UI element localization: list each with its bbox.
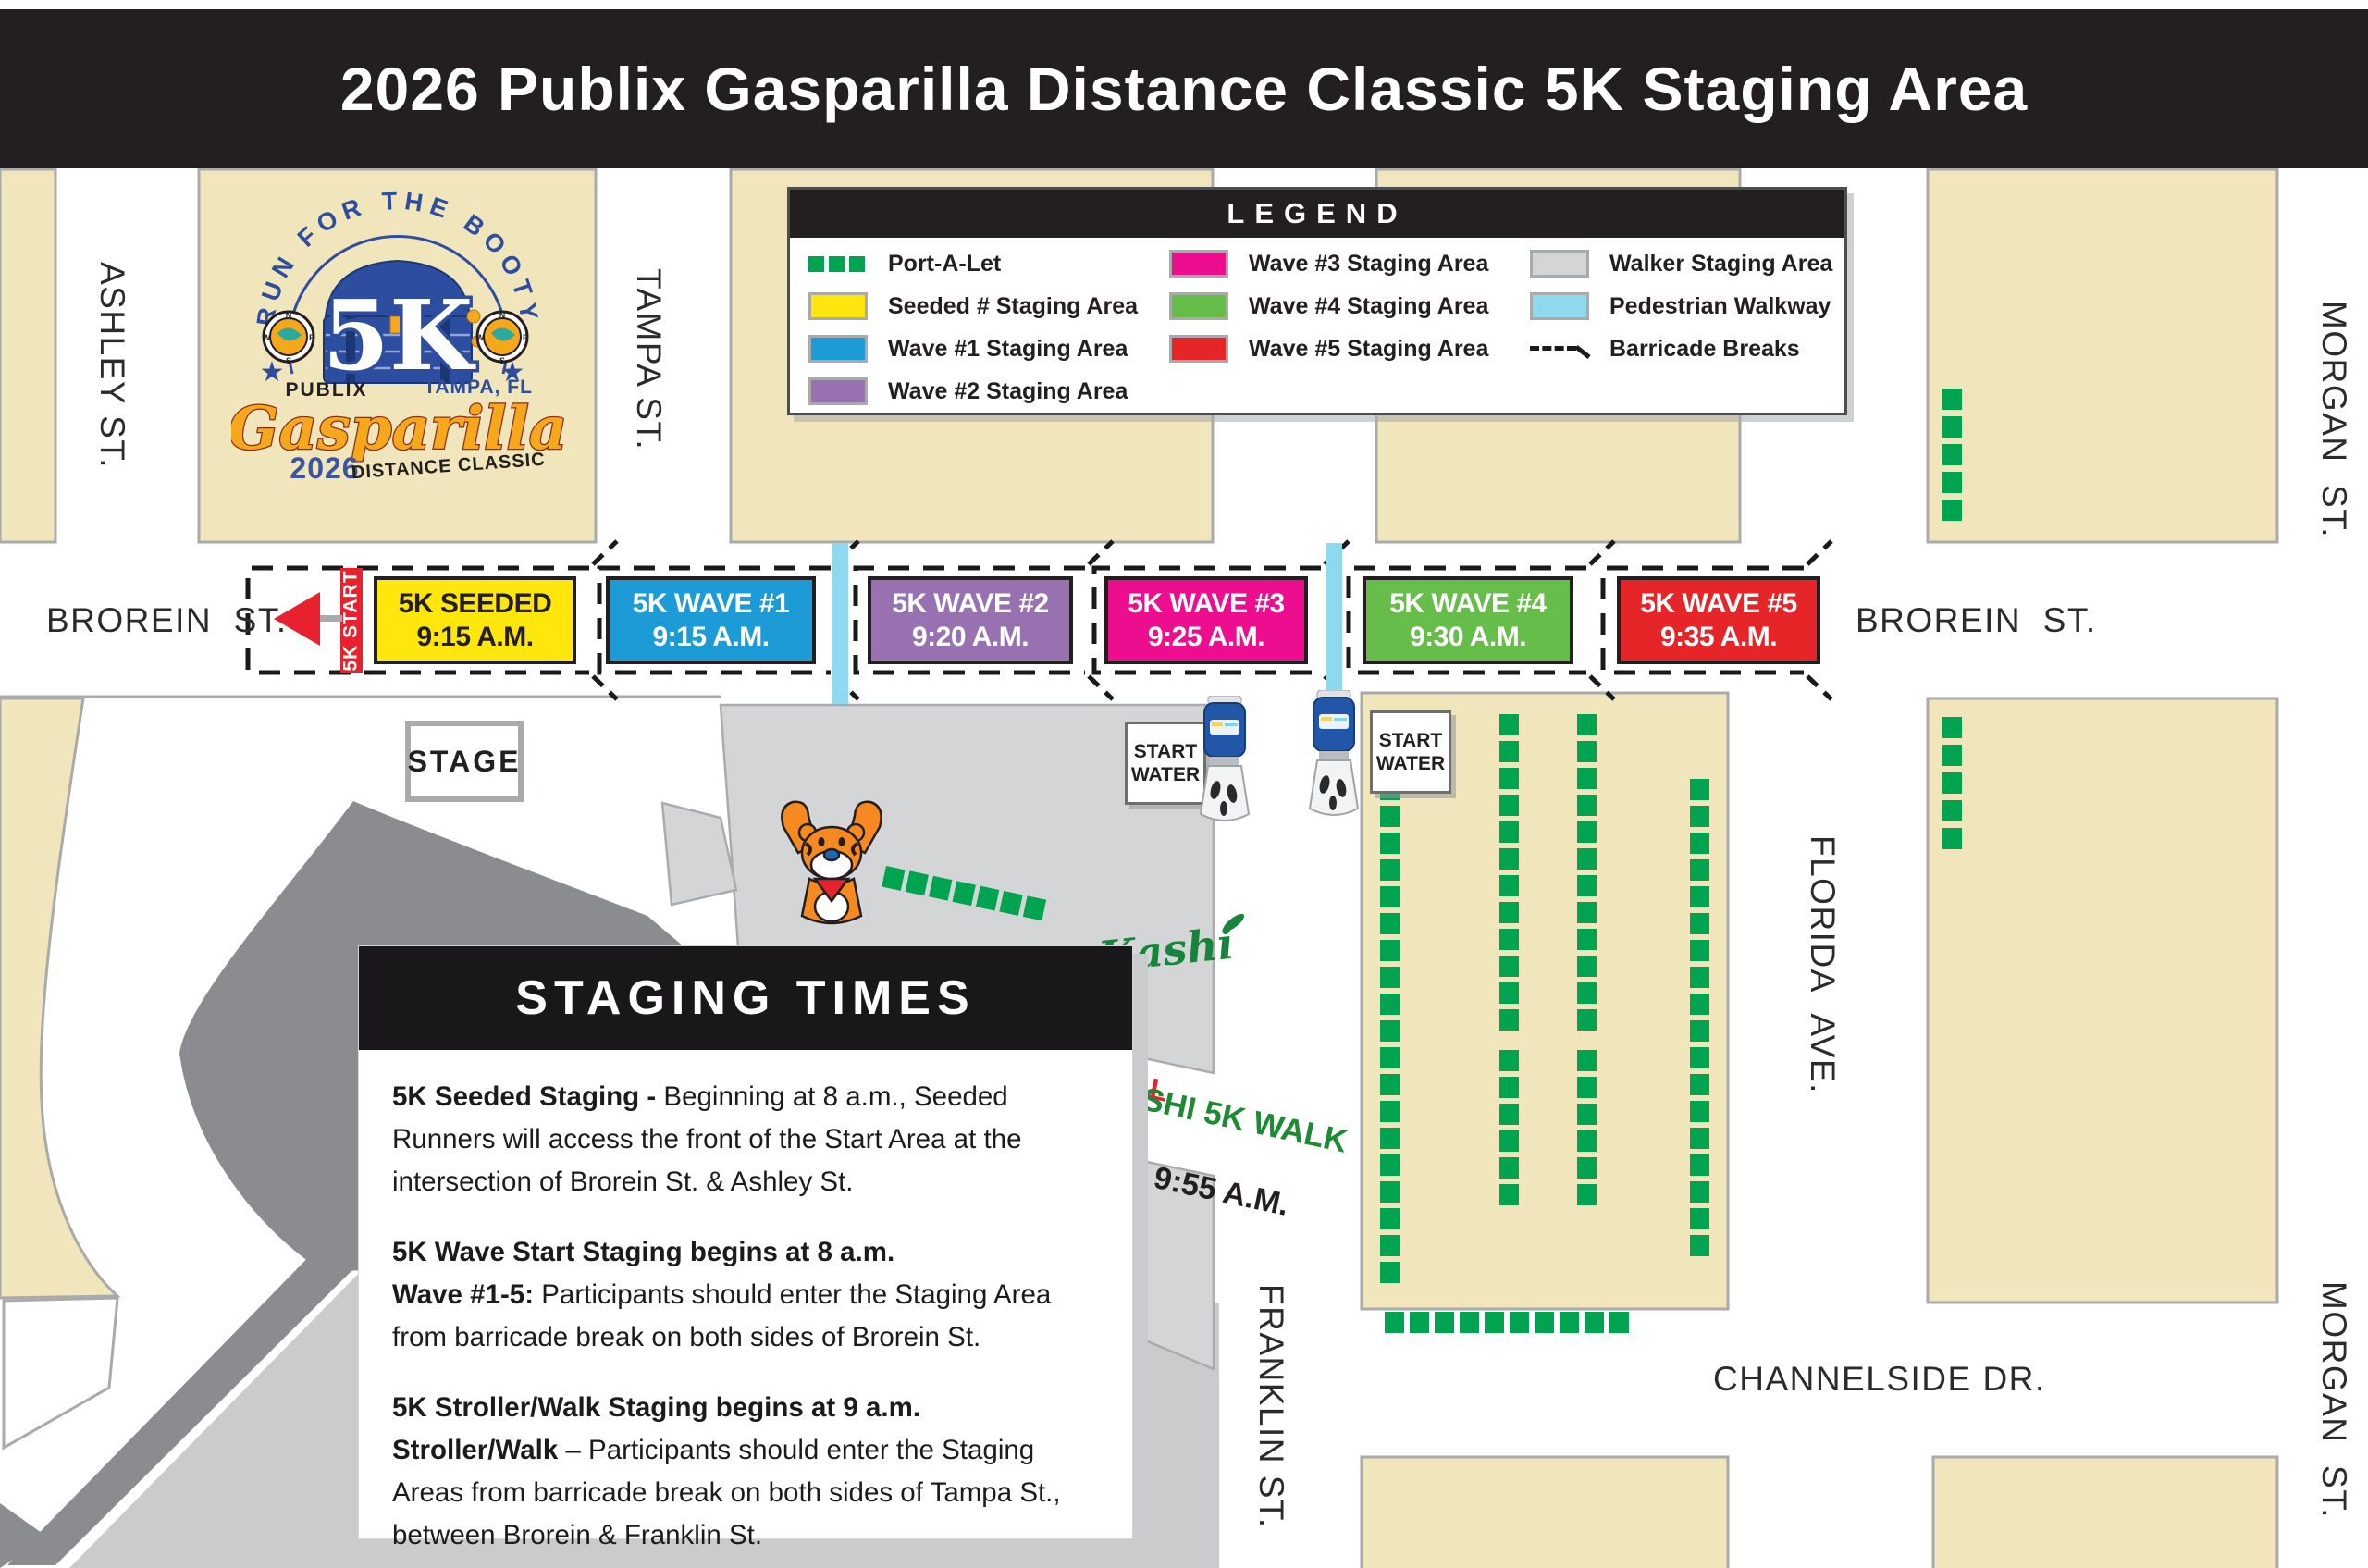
water-cooler-icon: [1308, 690, 1360, 829]
wave-staging-box: 5K WAVE #59:35 A.M.: [1617, 576, 1820, 664]
pedestrian-walkway-bar: [832, 543, 848, 704]
port-a-let-square: [1499, 714, 1519, 735]
port-a-let-square: [1690, 806, 1709, 827]
start-water-line1: START: [1379, 729, 1442, 752]
staging-times-box: STAGING TIMES 5K Seeded Staging - Beginn…: [358, 945, 1133, 1539]
legend-item: Seeded # Staging Area: [808, 290, 1138, 323]
port-a-let-square: [1499, 795, 1519, 816]
legend-label: Walker Staging Area: [1609, 251, 1832, 278]
start-water-box: START WATER: [1125, 722, 1206, 805]
port-a-let-square: [1577, 1130, 1597, 1152]
svg-text:N: N: [286, 311, 292, 320]
port-a-let-square: [1577, 768, 1597, 789]
wave-staging-box: 5K WAVE #19:15 A.M.: [606, 576, 816, 664]
wave-time: 9:30 A.M.: [1410, 621, 1526, 654]
city-block: [0, 169, 55, 542]
port-a-let-square: [1380, 1020, 1400, 1042]
wave-label: 5K SEEDED: [399, 587, 552, 621]
port-a-let-square: [1499, 1077, 1519, 1098]
port-a-let-square: [1560, 1312, 1579, 1333]
legend-item: Wave #1 Staging Area: [808, 332, 1128, 365]
port-a-let-square: [1690, 833, 1709, 854]
port-a-let-square: [1577, 848, 1597, 870]
port-a-let-square: [1380, 1262, 1400, 1283]
start-water-line1: START: [1134, 740, 1197, 763]
port-a-let-square: [1690, 779, 1709, 800]
port-a-let-square: [1535, 1312, 1554, 1333]
port-a-let-square: [1380, 1235, 1400, 1256]
port-a-let-square: [1499, 956, 1519, 977]
port-a-let-square: [1510, 1312, 1529, 1333]
stage-label: STAGE: [408, 745, 522, 779]
staging-times-paragraph: 5K Wave Start Staging begins at 8 a.m.Wa…: [392, 1231, 1106, 1359]
port-a-let-square: [1577, 1077, 1597, 1098]
port-a-let-square: [1499, 929, 1519, 950]
5k-start-label: 5K START: [340, 570, 363, 671]
color-swatch-icon: [808, 377, 868, 405]
legend-item: Wave #5 Staging Area: [1169, 332, 1488, 365]
title-bar: 2026 Publix Gasparilla Distance Classic …: [0, 9, 2368, 168]
barricade-break-swatch-icon: [1530, 335, 1589, 363]
city-block: [1362, 1457, 1728, 1568]
city-block: [1933, 1457, 2277, 1568]
legend-item: Port-A-Let: [808, 247, 1001, 280]
color-swatch-icon: [1530, 292, 1589, 320]
staging-times-text: 5K Seeded Staging -: [392, 1081, 663, 1112]
port-a-let-square: [1499, 1050, 1519, 1071]
legend-label: Pedestrian Walkway: [1609, 293, 1831, 320]
svg-text:E: E: [309, 333, 314, 342]
port-a-let-square: [1410, 1312, 1429, 1333]
port-a-let-square: [1942, 500, 1962, 521]
port-a-let-square: [1499, 1009, 1519, 1031]
port-a-let-square: [1385, 1312, 1404, 1333]
port-a-let-square: [1942, 416, 1962, 438]
port-a-let-square: [1577, 956, 1597, 977]
port-a-let-square: [1690, 1047, 1709, 1068]
city-block: [1928, 698, 2277, 1303]
port-a-let-square: [1435, 1312, 1454, 1333]
port-a-let-square: [1577, 982, 1597, 1004]
street-label-tampa: TAMPA ST.: [629, 268, 668, 451]
port-a-let-square: [1690, 886, 1709, 907]
port-a-let-square: [1485, 1312, 1504, 1333]
port-a-let-square: [1690, 1074, 1709, 1095]
port-a-let-square: [1499, 1157, 1519, 1179]
walker-staging-notch: [662, 803, 736, 905]
start-water-box: START WATER: [1370, 710, 1451, 794]
legend-label: Barricade Breaks: [1609, 336, 1800, 363]
port-a-let-square: [1499, 848, 1519, 870]
stage-box: STAGE: [405, 721, 524, 802]
5k-start-band: 5K START: [340, 568, 363, 673]
start-water-line2: WATER: [1131, 763, 1200, 786]
street-label-brorein-west: BROREIN ST.: [46, 601, 288, 640]
port-a-let-square: [1690, 859, 1709, 881]
port-a-let-square: [1380, 1047, 1400, 1068]
port-a-let-square: [1499, 1184, 1519, 1205]
wave-label: 5K WAVE #3: [1128, 587, 1285, 621]
port-a-let-square: [1942, 828, 1962, 849]
port-a-let-square: [1499, 875, 1519, 896]
port-a-let-square: [1499, 741, 1519, 762]
port-a-let-square: [1690, 1101, 1709, 1122]
port-a-let-square: [1499, 821, 1519, 843]
port-a-let-square: [1690, 1154, 1709, 1176]
legend-item: Wave #2 Staging Area: [808, 375, 1128, 408]
port-a-let-square: [1380, 806, 1400, 827]
barricade-break-tick: [1590, 541, 1614, 564]
svg-text:N: N: [499, 311, 506, 320]
port-a-let-square: [1380, 859, 1400, 881]
staging-times-header: STAGING TIMES: [359, 946, 1132, 1050]
legend-item: Wave #3 Staging Area: [1169, 247, 1488, 280]
staging-times-text: Wave #1-5:: [392, 1279, 541, 1310]
port-a-let-square: [1690, 1181, 1709, 1203]
port-a-let-square: [1380, 913, 1400, 934]
port-a-let-square: [1380, 940, 1400, 961]
port-a-let-square: [1942, 772, 1962, 794]
wave-label: 5K WAVE #2: [892, 587, 1049, 621]
port-a-let-square: [1690, 1235, 1709, 1256]
city-block-curved: [0, 698, 117, 1298]
color-swatch-icon: [1530, 250, 1589, 278]
port-a-let-square: [1690, 1020, 1709, 1042]
svg-text:S: S: [499, 356, 505, 365]
port-a-let-square: [1942, 717, 1962, 738]
port-a-let-square: [1577, 1050, 1597, 1071]
legend-label: Wave #3 Staging Area: [1249, 251, 1488, 278]
page-title: 2026 Publix Gasparilla Distance Classic …: [340, 54, 2028, 124]
port-a-let-group: [1942, 717, 1962, 849]
port-a-let-square: [1380, 967, 1400, 988]
color-swatch-icon: [1169, 335, 1228, 363]
port-a-let-square: [1380, 1154, 1400, 1176]
legend-header: LEGEND: [790, 190, 1844, 238]
port-a-let-square: [1460, 1312, 1479, 1333]
wave-staging-box: 5K WAVE #49:30 A.M.: [1363, 576, 1573, 664]
staging-times-text: 5K Stroller/Walk Staging begins at 9 a.m…: [392, 1392, 920, 1423]
legend-title: LEGEND: [1227, 197, 1407, 230]
port-a-let-square: [1942, 472, 1962, 493]
street-label-channelside: CHANNELSIDE DR.: [1713, 1360, 2046, 1399]
port-a-let-square: [1690, 1208, 1709, 1229]
port-a-let-square: [1942, 444, 1962, 465]
wave-label: 5K WAVE #1: [633, 587, 790, 621]
port-a-let-square: [1577, 741, 1597, 762]
street-wedge: [4, 1298, 117, 1448]
port-a-let-group: [1942, 389, 1962, 521]
port-a-let-square: [1577, 929, 1597, 950]
street-label-morgan-south: MORGAN ST.: [2314, 1281, 2353, 1519]
port-a-let-square: [1380, 1181, 1400, 1203]
port-a-let-square: [1609, 1312, 1629, 1333]
wave-label: 5K WAVE #4: [1389, 587, 1547, 621]
legend: LEGEND Port-A-LetSeeded # Staging AreaWa…: [787, 187, 1847, 415]
street-label-franklin: FRANKLIN ST.: [1252, 1284, 1290, 1529]
port-a-let-square: [1577, 714, 1597, 735]
water-cooler-icon: [1199, 696, 1251, 834]
color-swatch-icon: [1169, 250, 1228, 278]
barricade-break-tick: [1089, 676, 1113, 699]
legend-label: Wave #1 Staging Area: [888, 336, 1128, 363]
street-label-brorein-east: BROREIN ST.: [1856, 601, 2097, 640]
wave-staging-box: 5K WAVE #29:20 A.M.: [868, 576, 1073, 664]
barricade-break-tick: [1807, 676, 1831, 699]
staging-area-map: 2026 Publix Gasparilla Distance Classic …: [0, 0, 2368, 1568]
svg-text:E: E: [523, 333, 528, 342]
staging-times-body: 5K Seeded Staging - Beginning at 8 a.m.,…: [359, 1050, 1132, 1557]
street-label-morgan-north: MORGAN ST.: [2314, 301, 2353, 538]
pedestrian-walkway-bar: [1326, 543, 1342, 700]
street-label-ashley: ASHLEY ST.: [92, 262, 131, 469]
start-arrow-stem: [318, 615, 342, 622]
staging-times-title: STAGING TIMES: [515, 970, 975, 1026]
staging-times-paragraph: 5K Stroller/Walk Staging begins at 9 a.m…: [392, 1387, 1106, 1557]
port-a-let-square: [1690, 967, 1709, 988]
port-a-let-square: [1380, 886, 1400, 907]
wave-time: 9:35 A.M.: [1660, 621, 1777, 654]
port-a-let-square: [1380, 833, 1400, 854]
port-a-let-square: [1942, 745, 1962, 766]
port-a-let-square: [1499, 982, 1519, 1004]
port-a-let-square: [1380, 1208, 1400, 1229]
legend-label: Seeded # Staging Area: [888, 293, 1138, 320]
port-a-let-square: [1577, 1157, 1597, 1179]
port-a-let-square: [1690, 913, 1709, 934]
color-swatch-icon: [808, 335, 868, 363]
staging-times-text: Stroller/Walk: [392, 1435, 565, 1465]
legend-label: Wave #2 Staging Area: [888, 378, 1128, 405]
port-a-let-square: [1577, 1184, 1597, 1205]
port-a-let-square: [1499, 768, 1519, 789]
wave-time: 9:15 A.M.: [416, 621, 533, 654]
port-a-let-square: [1499, 1104, 1519, 1125]
port-a-let-square: [1942, 800, 1962, 821]
city-block: [1928, 169, 2277, 542]
wave-staging-box: 5K SEEDED9:15 A.M.: [374, 576, 576, 664]
wave-label: 5K WAVE #5: [1640, 587, 1797, 621]
svg-text:S: S: [286, 356, 291, 365]
legend-label: Wave #5 Staging Area: [1249, 336, 1488, 363]
logo-5k: 5K: [323, 278, 476, 392]
color-swatch-icon: [808, 292, 868, 320]
legend-item: Wave #4 Staging Area: [1169, 290, 1488, 323]
port-a-let-square: [1380, 1128, 1400, 1149]
gasparilla-5k-logo: RUN FOR THE BOOTY ★ ★ N S W E: [231, 178, 601, 497]
wave-staging-box: 5K WAVE #39:25 A.M.: [1104, 576, 1308, 664]
port-a-let-square: [1577, 1009, 1597, 1031]
port-a-let-square: [1380, 1101, 1400, 1122]
port-a-let-square: [1577, 821, 1597, 843]
port-a-let-swatch-icon: [808, 256, 868, 272]
port-a-let-square: [1380, 1074, 1400, 1095]
staging-times-paragraph: 5K Seeded Staging - Beginning at 8 a.m.,…: [392, 1076, 1106, 1204]
port-a-let-group: [1385, 1312, 1629, 1333]
staging-times-text: 5K Wave Start Staging begins at 8 a.m.: [392, 1237, 894, 1267]
port-a-let-square: [1499, 902, 1519, 923]
color-swatch-icon: [1169, 292, 1228, 320]
legend-item: Pedestrian Walkway: [1530, 290, 1831, 323]
barricade-break-tick: [1089, 541, 1113, 564]
tony-tiger-mascot: [771, 796, 893, 934]
svg-text:W: W: [476, 333, 485, 342]
wave-time: 9:20 A.M.: [912, 621, 1029, 654]
start-water-line2: WATER: [1376, 752, 1445, 775]
legend-label: Port-A-Let: [888, 251, 1001, 278]
logo-year: 2026: [290, 451, 359, 485]
legend-label: Wave #4 Staging Area: [1249, 293, 1488, 320]
port-a-let-square: [1577, 795, 1597, 816]
barricade-break-tick: [593, 541, 617, 564]
port-a-let-square: [1942, 389, 1962, 410]
port-a-let-square: [1380, 994, 1400, 1015]
port-a-let-square: [1585, 1312, 1604, 1333]
legend-item: Barricade Breaks: [1530, 332, 1800, 365]
port-a-let-square: [1690, 1128, 1709, 1149]
wave-time: 9:25 A.M.: [1148, 621, 1264, 654]
port-a-let-square: [1577, 1104, 1597, 1125]
port-a-let-square: [1577, 902, 1597, 923]
street-label-florida: FLORIDA AVE.: [1803, 835, 1842, 1094]
port-a-let-square: [1690, 940, 1709, 961]
wave-time: 9:15 A.M.: [652, 621, 769, 654]
legend-item: Walker Staging Area: [1530, 247, 1832, 280]
port-a-let-square: [1499, 1130, 1519, 1152]
barricade-break-tick: [1807, 541, 1831, 564]
port-a-let-square: [1690, 994, 1709, 1015]
svg-text:W: W: [263, 333, 271, 342]
port-a-let-square: [1577, 875, 1597, 896]
